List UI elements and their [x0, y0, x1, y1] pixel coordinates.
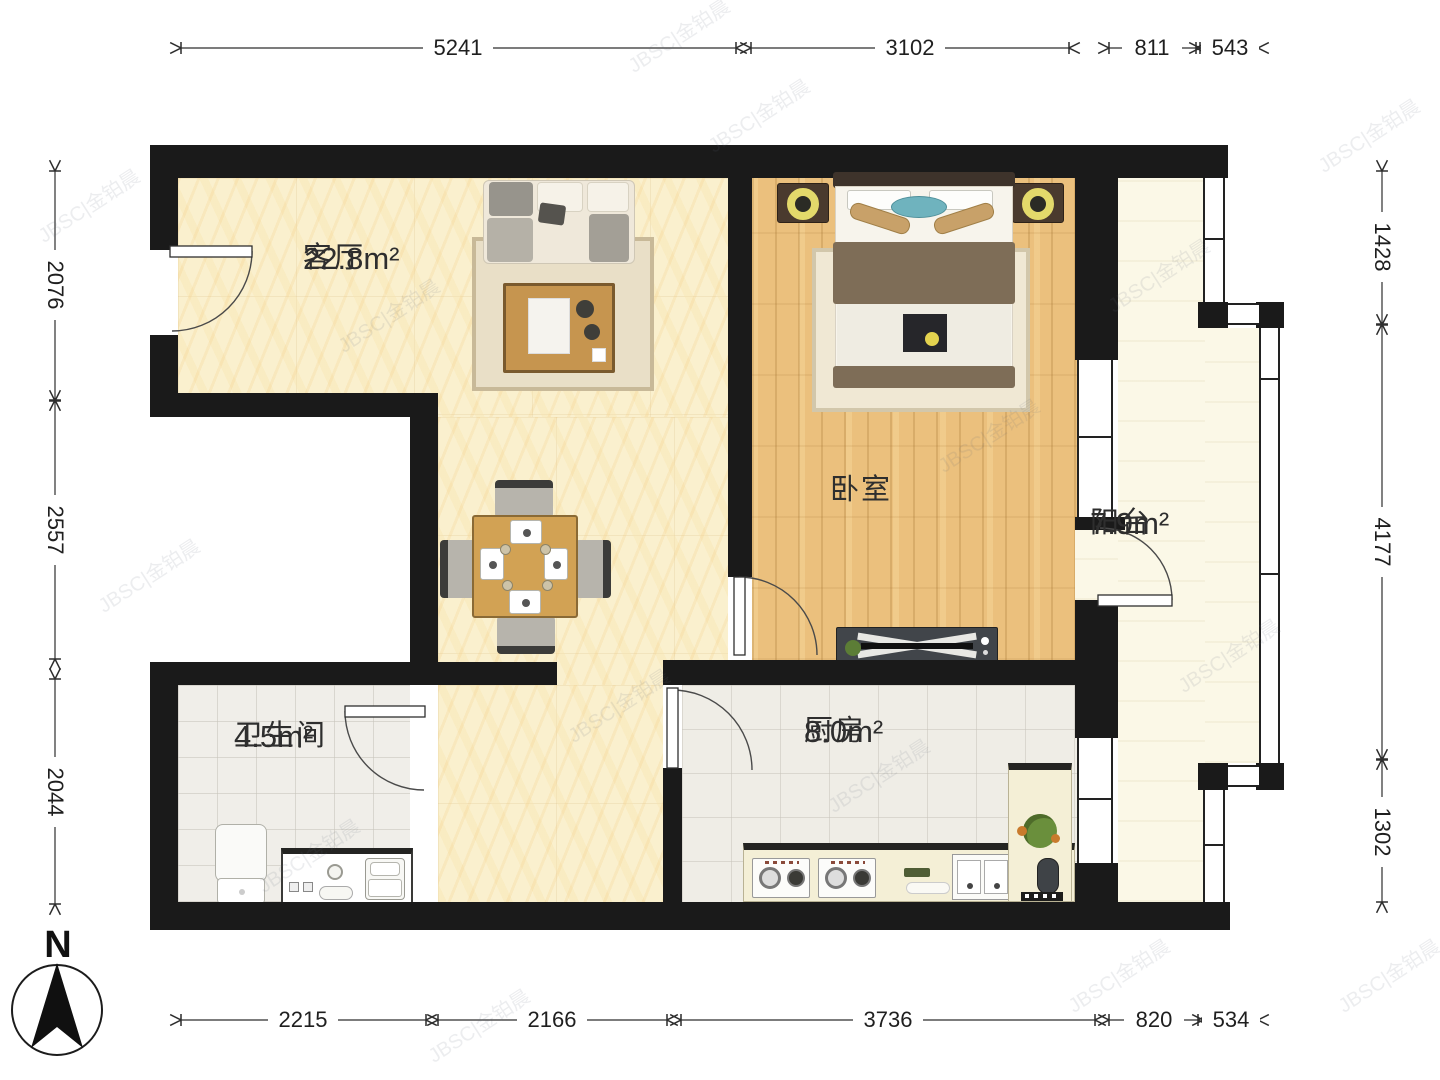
dim-right-2: 1302	[1370, 797, 1394, 867]
dim-left-0: 2076	[43, 250, 67, 320]
window-mullion	[1205, 238, 1223, 240]
dining-chair-north	[495, 480, 553, 518]
burner-icon	[787, 869, 805, 887]
sofa	[483, 178, 635, 264]
compass-circle	[12, 965, 102, 1055]
dish-tray	[906, 882, 950, 894]
plate-dot	[522, 599, 530, 607]
knob	[981, 637, 989, 645]
dim-top-2: 811	[1122, 36, 1182, 60]
sink-basin	[319, 886, 353, 900]
window-kitchen-balcony	[1077, 738, 1113, 863]
window-bedroom-balcony	[1077, 360, 1113, 517]
coffee-table	[503, 283, 615, 373]
dim-top-3: 543	[1201, 36, 1259, 60]
dining-chair-east	[575, 540, 611, 598]
toilet-body	[215, 824, 267, 882]
wall-bay-corner-se	[1256, 763, 1284, 790]
room-area: 8.0m²	[804, 713, 883, 752]
sink-icon	[327, 864, 343, 880]
window-balcony-right-lower	[1203, 790, 1225, 902]
bed-cushion-teal	[891, 196, 947, 218]
cup	[542, 580, 553, 591]
vanity-dial	[289, 882, 299, 892]
room-area: 4.5m²	[234, 718, 313, 757]
thermos	[1037, 858, 1059, 894]
coffee-table-bowl	[576, 300, 594, 318]
cup	[502, 580, 513, 591]
burner-icon	[825, 867, 847, 889]
drain-dot	[967, 883, 973, 889]
floor-hallway	[438, 685, 663, 902]
wall-left-upper	[150, 178, 178, 250]
dim-bottom-3: 820	[1124, 1008, 1184, 1032]
coffee-table-tray	[528, 298, 570, 354]
wall-balcony-divider-mid	[1075, 600, 1118, 738]
floor-balcony-bay	[1205, 328, 1259, 763]
wall-notch-top	[150, 393, 438, 417]
coffee-table-bowl	[584, 324, 600, 340]
window-mullion	[1261, 573, 1278, 575]
plate-dot	[489, 561, 497, 569]
dim-bottom-0: 2215	[268, 1008, 338, 1032]
compass-north-label: N	[36, 924, 80, 967]
knob	[983, 650, 988, 655]
tv-bar	[861, 643, 973, 649]
burner-icon	[759, 867, 781, 889]
stove	[752, 858, 810, 898]
dim-right-1: 4177	[1370, 507, 1394, 577]
floor-plan-canvas: 客厅 22.8m² 卧室 阳台 7.9m² 卫生间 4.5m² 厨房 8.0m²…	[0, 0, 1440, 1080]
wall-bay-corner-ne	[1256, 302, 1284, 328]
wall-left-lower	[150, 662, 178, 930]
window-mullion	[1079, 798, 1111, 800]
dim-left-1: 2557	[43, 495, 67, 565]
toilet-dot	[239, 889, 245, 895]
kitchen-counter-l	[1008, 763, 1072, 902]
plant-fruit	[1051, 834, 1060, 843]
spice-rack	[1021, 892, 1063, 901]
window-bay-bottom-link	[1228, 765, 1259, 787]
lamp-icon	[787, 188, 819, 220]
burner-icon	[853, 869, 871, 887]
coffee-table-napkin	[592, 348, 606, 362]
dining-set	[438, 478, 618, 668]
wall-bay-corner-sw	[1198, 763, 1228, 790]
vanity-dial	[303, 882, 313, 892]
watermark: JBSC|金铂晨	[621, 0, 734, 78]
room-name: 卧室	[830, 472, 892, 508]
wall-kitchen-left	[663, 768, 682, 902]
wall-bedroom-bottom	[663, 660, 1118, 685]
lamp-icon	[1022, 188, 1054, 220]
watermark: JBSC|金铂晨	[31, 161, 144, 249]
wall-top	[150, 145, 1228, 178]
watermark: JBSC|金铂晨	[1061, 931, 1174, 1019]
wall-balcony-divider-lower	[1075, 863, 1118, 902]
wall-living-bedroom	[728, 178, 752, 577]
sofa-pillow-dark	[538, 202, 567, 225]
nightstand-left	[777, 183, 829, 223]
plant-fruit	[1017, 826, 1027, 836]
drain-dot	[994, 883, 1000, 889]
dining-chair-west	[440, 540, 476, 598]
washing-machine	[365, 858, 405, 900]
sink-basin	[984, 860, 1008, 894]
window-mullion	[1261, 378, 1278, 380]
wall-bay-corner-nw	[1198, 302, 1228, 328]
nightstand-right	[1012, 183, 1064, 223]
sofa-cushion	[587, 182, 629, 212]
watermark: JBSC|金铂晨	[1311, 91, 1424, 179]
wall-notch-right	[410, 417, 438, 662]
dining-chair-south	[497, 616, 555, 654]
cup	[500, 544, 511, 555]
compass-north-arrow-icon	[31, 963, 83, 1048]
plate-dot	[523, 529, 531, 537]
wall-balcony-divider-upper	[1075, 178, 1118, 360]
dim-bottom-4: 534	[1202, 1008, 1260, 1032]
plant-icon	[1023, 814, 1057, 848]
bed-duvet	[833, 242, 1015, 304]
kitchen-door-leaf	[667, 688, 678, 768]
place-setting	[510, 520, 542, 544]
window-mullion	[1079, 436, 1111, 438]
bath-vanity	[281, 848, 413, 904]
stove-dots	[831, 861, 865, 864]
kitchen-sink	[952, 854, 1012, 900]
cup	[540, 544, 551, 555]
window-balcony-right-upper	[1203, 178, 1225, 302]
stove	[818, 858, 876, 898]
sofa-chaise	[487, 218, 533, 262]
double-bed	[833, 172, 1015, 388]
flower-icon	[925, 332, 939, 346]
washer-lid	[370, 862, 400, 876]
watermark: JBSC|金铂晨	[1331, 931, 1440, 1019]
dim-top-0: 5241	[423, 36, 493, 60]
bed-duvet-end	[833, 366, 1015, 388]
bedroom-door-leaf	[734, 577, 745, 655]
dim-right-0: 1428	[1370, 212, 1394, 282]
window-bay-top-link	[1228, 303, 1259, 325]
room-area: 7.9m²	[1090, 505, 1169, 544]
bed-tray	[903, 314, 947, 352]
watermark: JBSC|金铂晨	[91, 531, 204, 619]
spice-dots	[1025, 894, 1059, 898]
dim-bottom-2: 3736	[853, 1008, 923, 1032]
washer-drum	[368, 879, 402, 897]
place-setting	[509, 590, 541, 614]
plant-icon	[845, 640, 861, 656]
window-mullion	[1205, 844, 1223, 846]
sink-basin	[957, 860, 981, 894]
cutting-board	[904, 868, 930, 877]
dim-top-1: 3102	[875, 36, 945, 60]
sofa-cushion-gray	[489, 182, 533, 216]
toilet-base	[217, 878, 265, 904]
dim-left-2: 2044	[43, 757, 67, 827]
dim-bottom-1: 2166	[517, 1008, 587, 1032]
sofa-throw	[589, 214, 629, 262]
wall-bathroom-top	[150, 662, 557, 685]
wall-bottom	[150, 902, 1230, 930]
stove-dots	[765, 861, 799, 864]
window-bay	[1259, 328, 1280, 763]
tv-cabinet	[836, 627, 998, 663]
toilet	[215, 824, 267, 904]
room-area: 22.8m²	[303, 240, 399, 279]
plate-dot	[553, 561, 561, 569]
